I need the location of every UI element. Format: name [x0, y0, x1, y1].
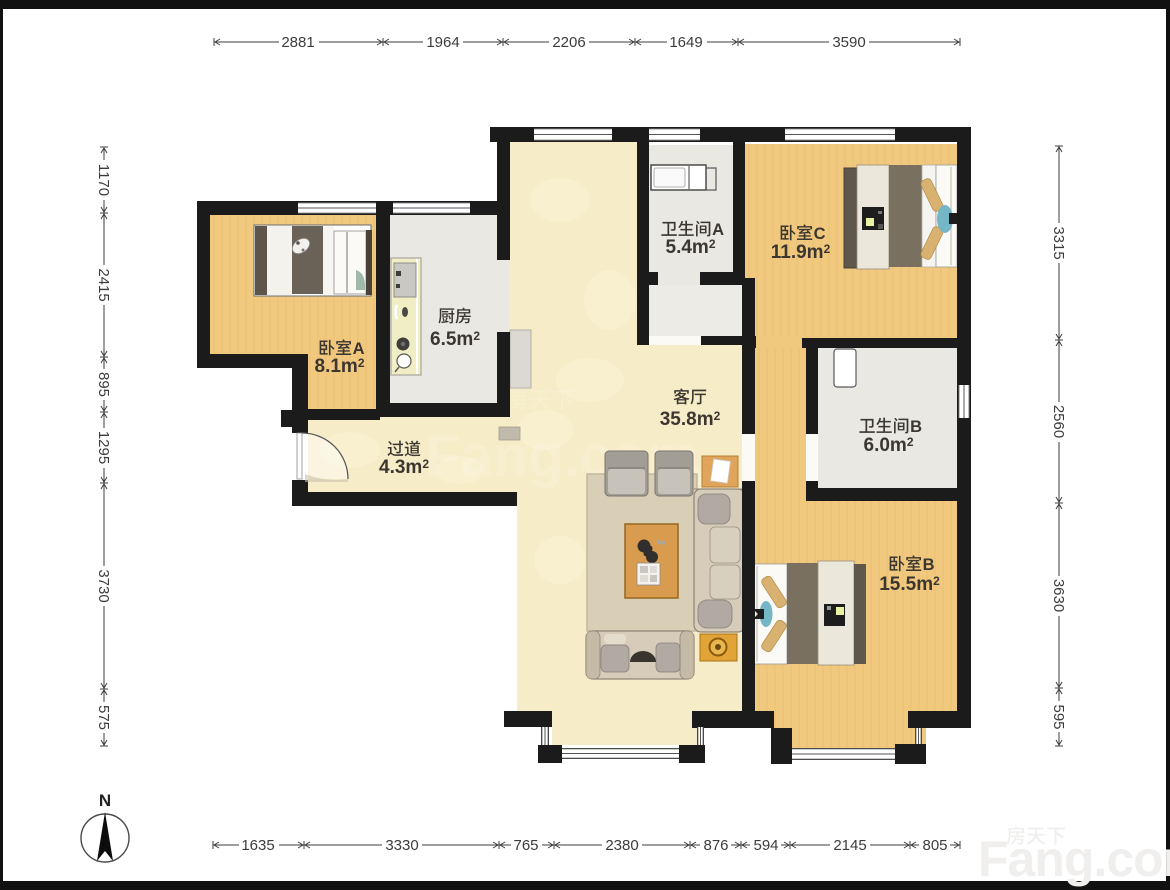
svg-text:3730: 3730 [95, 569, 112, 602]
svg-text:2380: 2380 [605, 837, 638, 854]
svg-text:B: B [923, 556, 935, 574]
svg-text:2415: 2415 [95, 268, 112, 301]
svg-text:1635: 1635 [241, 837, 274, 854]
svg-text:6.5m2: 6.5m2 [430, 329, 480, 350]
svg-text:8.1m2: 8.1m2 [315, 356, 365, 377]
svg-text:C: C [814, 225, 826, 243]
svg-text:3630: 3630 [1050, 579, 1067, 612]
svg-text:2206: 2206 [552, 34, 585, 51]
svg-text:765: 765 [513, 837, 538, 854]
svg-text:895: 895 [95, 372, 112, 397]
svg-text:15.5m2: 15.5m2 [879, 574, 940, 595]
svg-text:1649: 1649 [669, 34, 702, 51]
svg-text:3590: 3590 [832, 34, 865, 51]
svg-text:2145: 2145 [833, 837, 866, 854]
svg-text:B: B [910, 418, 922, 436]
svg-text:3315: 3315 [1050, 226, 1067, 259]
svg-text:575: 575 [95, 705, 112, 730]
svg-text:3330: 3330 [385, 837, 418, 854]
svg-text:1295: 1295 [95, 431, 112, 464]
svg-text:2881: 2881 [281, 34, 314, 51]
svg-text:5.4m2: 5.4m2 [666, 237, 716, 258]
svg-text:1964: 1964 [426, 34, 459, 51]
svg-text:1170: 1170 [95, 164, 112, 196]
svg-text:594: 594 [753, 837, 778, 854]
svg-text:2560: 2560 [1050, 405, 1067, 438]
svg-text:35.8m2: 35.8m2 [660, 409, 721, 430]
svg-text:4.3m2: 4.3m2 [379, 457, 429, 478]
svg-text:Fang.com: Fang.com [978, 831, 1170, 887]
svg-text:11.9m2: 11.9m2 [771, 242, 831, 263]
svg-text:N: N [99, 791, 111, 810]
svg-text:876: 876 [703, 837, 728, 854]
svg-text:595: 595 [1050, 704, 1067, 729]
svg-text:805: 805 [922, 837, 947, 854]
svg-text:6.0m2: 6.0m2 [864, 435, 914, 456]
